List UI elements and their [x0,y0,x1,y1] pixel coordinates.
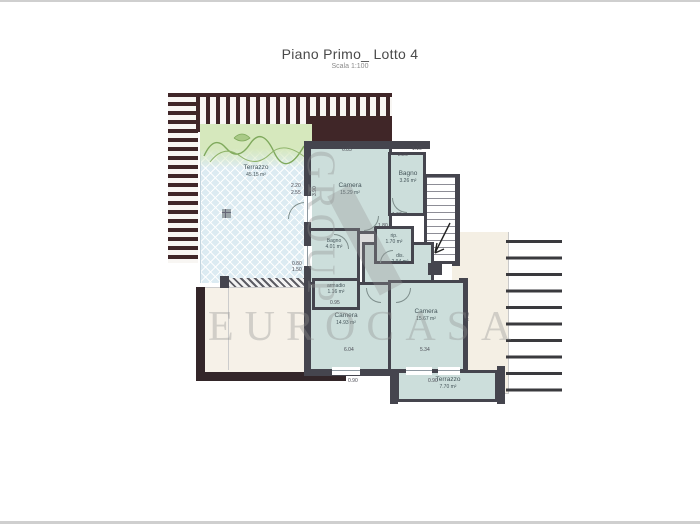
bottom-edge-line [0,521,700,524]
terrace-edge-line [228,288,229,370]
drain-grate [222,209,231,218]
dimension-label: 1.60 [392,212,402,218]
top-edge-line [0,0,700,2]
wall-pillar-hall [428,263,442,275]
dimension-label: 6.04 [344,347,354,353]
dimension-label: 4.40 [465,312,471,322]
dimension-label: 2.55 [291,190,301,196]
dimension-label: 6.85 [342,147,352,153]
dimension-label: 3.90 [312,186,318,196]
dimension-label: 5.34 [420,347,430,353]
stairs-direction-arrow-icon [426,220,456,262]
window-camera-br [406,367,432,375]
window-camera-bl [332,367,360,375]
foliage-illustration [200,124,312,168]
balcony-hatched-wall [227,278,312,287]
dimension-label: 1.50 [292,267,302,273]
exterior-stairs-railing [506,240,562,394]
wall-pillar [220,276,229,288]
planting-strip [200,124,312,168]
pergola-side-slats [168,93,198,263]
window-bagno-left [304,246,312,266]
door-opening-terrace-lower [438,367,460,375]
dimension-label: 1.80 [378,223,388,229]
floorplan-canvas: Piano Primo_ Lotto 4 Scala 1:100 [0,0,700,525]
page-title: Piano Primo_ Lotto 4 [0,46,700,62]
dimension-label: 0.90 [348,378,358,384]
window-camera-top [304,196,312,222]
parapet-left [196,287,205,381]
dimension-label: 0.90 [428,378,438,384]
dimension-label: 2.20 [291,183,301,189]
scale-label: Scala 1:100 [0,63,700,70]
dimension-label: 1.10 [412,146,422,152]
wall-terrace-right [497,366,505,404]
dimension-label: 0.95 [330,300,340,306]
dimension-label: 2.26 [398,152,408,158]
terrace-lower-left [205,287,307,372]
